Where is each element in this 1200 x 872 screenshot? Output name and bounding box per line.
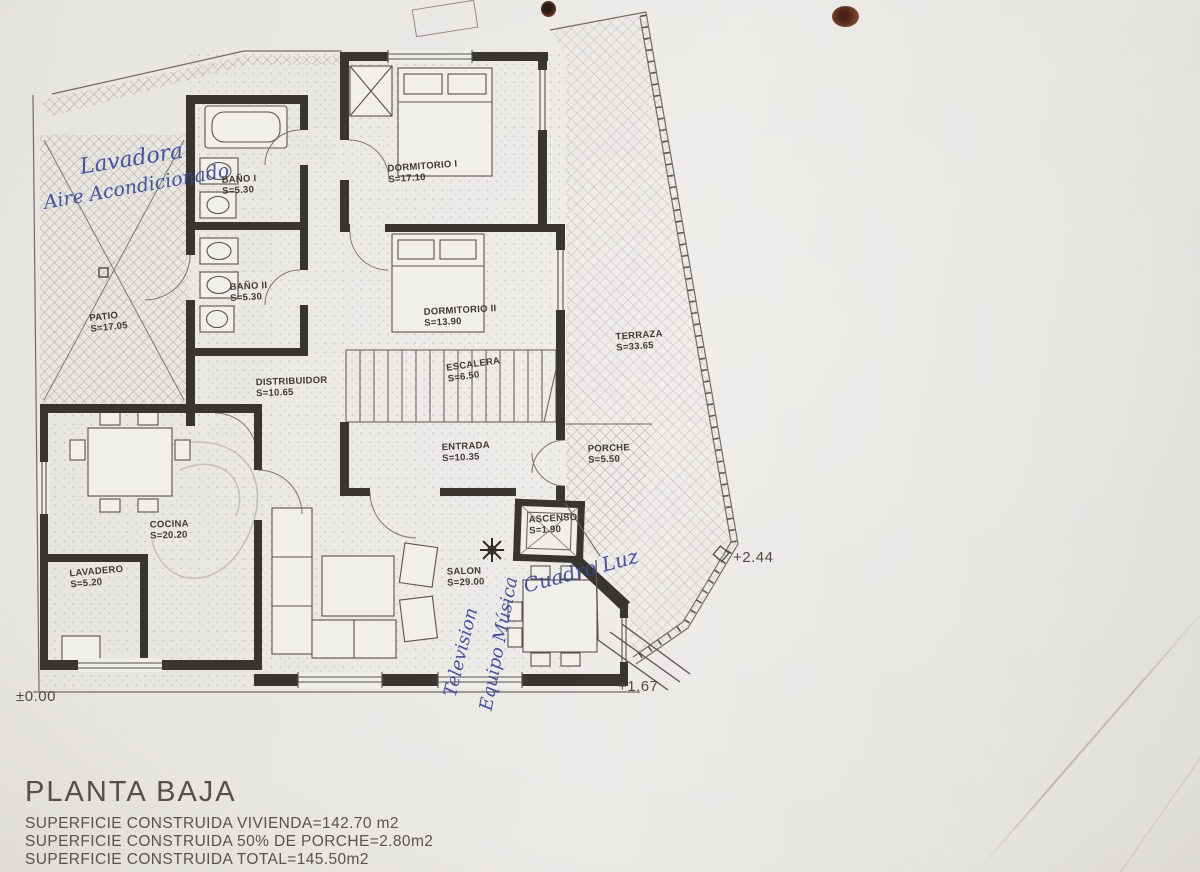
paper-crease-2 — [1120, 692, 1200, 872]
plant-icon — [480, 538, 504, 562]
scanned-floorplan-page: BAÑO IS=5.30 DORMITORIO IS=17.10 BAÑO II… — [0, 0, 1200, 872]
room-label-terraza: TERRAZAS=33.65 — [615, 329, 664, 354]
bathtub-icon — [205, 106, 287, 148]
room-label-cocina: COCINAS=20.20 — [150, 519, 190, 542]
punch-hole-large — [832, 6, 859, 27]
surface-line-total: SUPERFICIE CONSTRUIDA TOTAL=145.50m2 — [25, 851, 369, 869]
room-label-salon: SALONS=29.00 — [447, 566, 485, 589]
elevation-terrace: +2.44 — [733, 549, 773, 566]
room-label-distribuidor: DISTRIBUIDORS=10.65 — [256, 376, 328, 400]
room-label-lavadero: LAVADEROS=5.20 — [69, 565, 125, 591]
room-label-dormitorio-2: DORMITORIO IIS=13.90 — [423, 304, 497, 330]
plan-title: PLANTA BAJA — [25, 776, 237, 809]
elevation-porch: +1.67 — [618, 678, 658, 695]
punch-hole-small — [541, 1, 556, 17]
elevation-ground: ±0.00 — [16, 688, 56, 705]
coffee-table-icon — [322, 556, 394, 616]
room-label-patio: PATIOS=17.05 — [89, 310, 129, 336]
surface-line-porche: SUPERFICIE CONSTRUIDA 50% DE PORCHE=2.80… — [25, 833, 433, 851]
scan-artifact-rect — [412, 0, 477, 36]
paper-crease — [978, 605, 1200, 870]
wardrobe-icon — [350, 66, 392, 116]
surface-line-vivienda: SUPERFICIE CONSTRUIDA VIVIENDA=142.70 m2 — [25, 815, 399, 833]
room-label-ascensor: ASCENSORS=1.90 — [528, 513, 585, 538]
room-label-bano-2: BAÑO IIS=5.30 — [229, 281, 268, 305]
armchair-icon-2 — [400, 596, 438, 642]
room-label-porche: PORCHES=5.50 — [588, 443, 631, 466]
floorplan-drawing — [0, 0, 780, 745]
room-label-entrada: ENTRADAS=10.35 — [441, 441, 490, 465]
armchair-icon-1 — [399, 543, 437, 587]
